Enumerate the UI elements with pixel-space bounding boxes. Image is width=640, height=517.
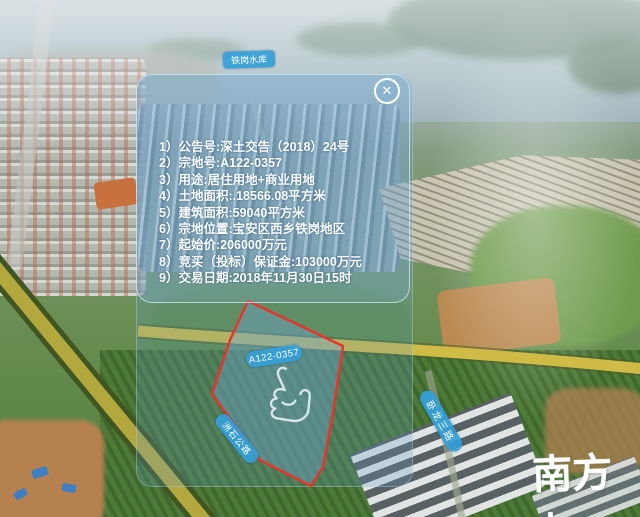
info-line-deposit: 8）竞买（投标）保证金:103000万元 bbox=[159, 254, 399, 270]
info-line-usage: 3）用途:居住用地+商业用地 bbox=[159, 172, 399, 188]
panorama-viewer: 铁岗水库 A122-0357 洲石公路 卧龙三路 ✕ 1）公告号:深土交告（20… bbox=[0, 0, 640, 517]
close-icon: ✕ bbox=[382, 83, 393, 99]
info-line-floor-area: 5）建筑面积:59040平方米 bbox=[159, 205, 399, 221]
info-line-starting-price: 7）起始价:206000万元 bbox=[159, 237, 399, 253]
info-line-trade-date: 9）交易日期:2018年11月30日15时 bbox=[159, 270, 399, 286]
land-info-panel: ✕ 1）公告号:深土交告（2018）24号 2）宗地号:A122-0357 3）… bbox=[136, 74, 410, 303]
land-info-list: 1）公告号:深土交告（2018）24号 2）宗地号:A122-0357 3）用途… bbox=[159, 139, 399, 287]
close-button[interactable]: ✕ bbox=[374, 78, 400, 104]
info-line-location: 6）宗地位置:宝安区西乡铁岗地区 bbox=[159, 221, 399, 237]
nanfang-plus-logo: 南方+ bbox=[531, 439, 640, 517]
info-line-parcel-no: 2）宗地号:A122-0357 bbox=[159, 155, 399, 171]
reservoir-label[interactable]: 铁岗水库 bbox=[223, 50, 276, 69]
reservoir-label-text: 铁岗水库 bbox=[231, 52, 267, 66]
info-line-land-area: 4）土地面积:.18566.08平方米 bbox=[159, 188, 399, 204]
info-line-announcement-no: 1）公告号:深土交告（2018）24号 bbox=[159, 139, 399, 155]
parcel-polygon[interactable] bbox=[212, 301, 343, 486]
